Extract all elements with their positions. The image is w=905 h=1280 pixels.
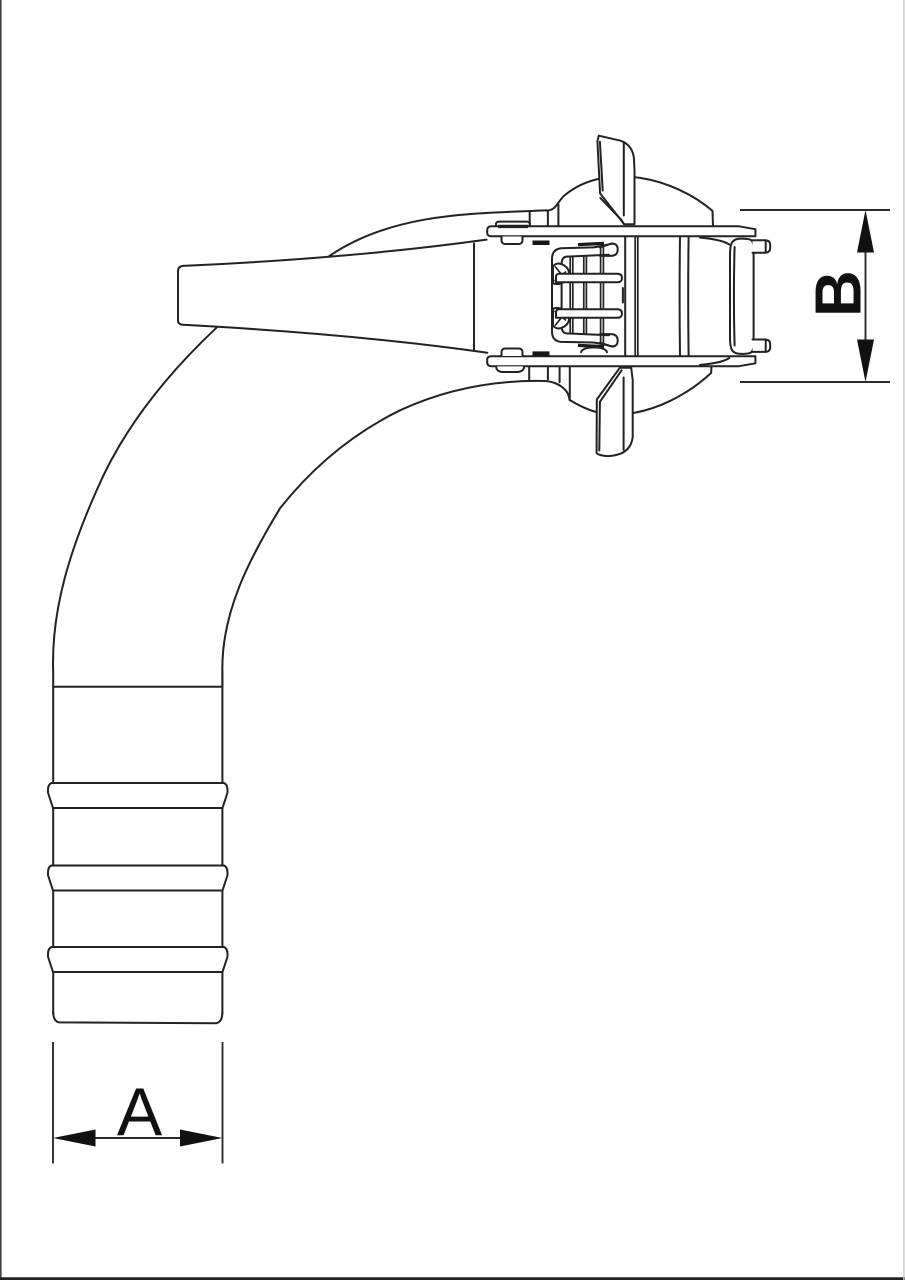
svg-text:A: A — [117, 1074, 163, 1150]
svg-text:B: B — [802, 270, 875, 317]
